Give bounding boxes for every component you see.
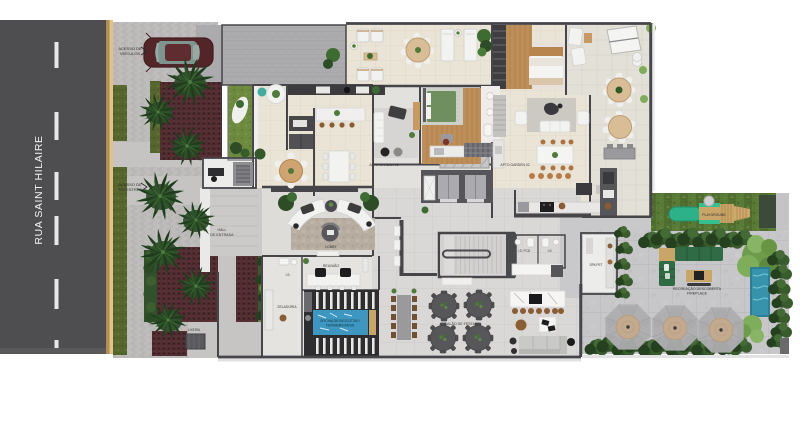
svg-text:VEÍCULOS: VEÍCULOS <box>120 51 141 56</box>
svg-text:SALÃO DE FESTAS: SALÃO DE FESTAS <box>445 321 478 326</box>
svg-text:DE ENTRADA: DE ENTRADA <box>210 233 234 237</box>
svg-text:ZELADORIA: ZELADORIA <box>277 305 297 309</box>
svg-text:LOBBY: LOBBY <box>325 245 337 249</box>
svg-text:OFICINA DE BICICLETAS /: OFICINA DE BICICLETAS / <box>320 319 361 323</box>
svg-text:FERRAMENTARIA: FERRAMENTARIA <box>326 324 355 328</box>
svg-text:I.S.: I.S. <box>286 273 291 277</box>
svg-text:I.S. PCD: I.S. PCD <box>518 249 531 253</box>
svg-text:SPA PET: SPA PET <box>589 263 602 267</box>
svg-text:PLAYGROUND: PLAYGROUND <box>702 213 726 217</box>
svg-text:REUNIÃO: REUNIÃO <box>323 263 340 268</box>
svg-text:APTO GARDEN 01: APTO GARDEN 01 <box>369 163 398 167</box>
svg-text:I.S.: I.S. <box>548 249 553 253</box>
svg-text:APTO GARDEN 02: APTO GARDEN 02 <box>500 163 529 167</box>
svg-text:LIXEIRA: LIXEIRA <box>188 328 201 332</box>
svg-text:RUA SAINT HILAIRE: RUA SAINT HILAIRE <box>33 135 45 244</box>
svg-text:FIREPLACE: FIREPLACE <box>687 292 708 296</box>
svg-text:RECREAÇÃO DESCOBERTA: RECREAÇÃO DESCOBERTA <box>673 286 722 291</box>
svg-text:HALL: HALL <box>218 228 227 232</box>
